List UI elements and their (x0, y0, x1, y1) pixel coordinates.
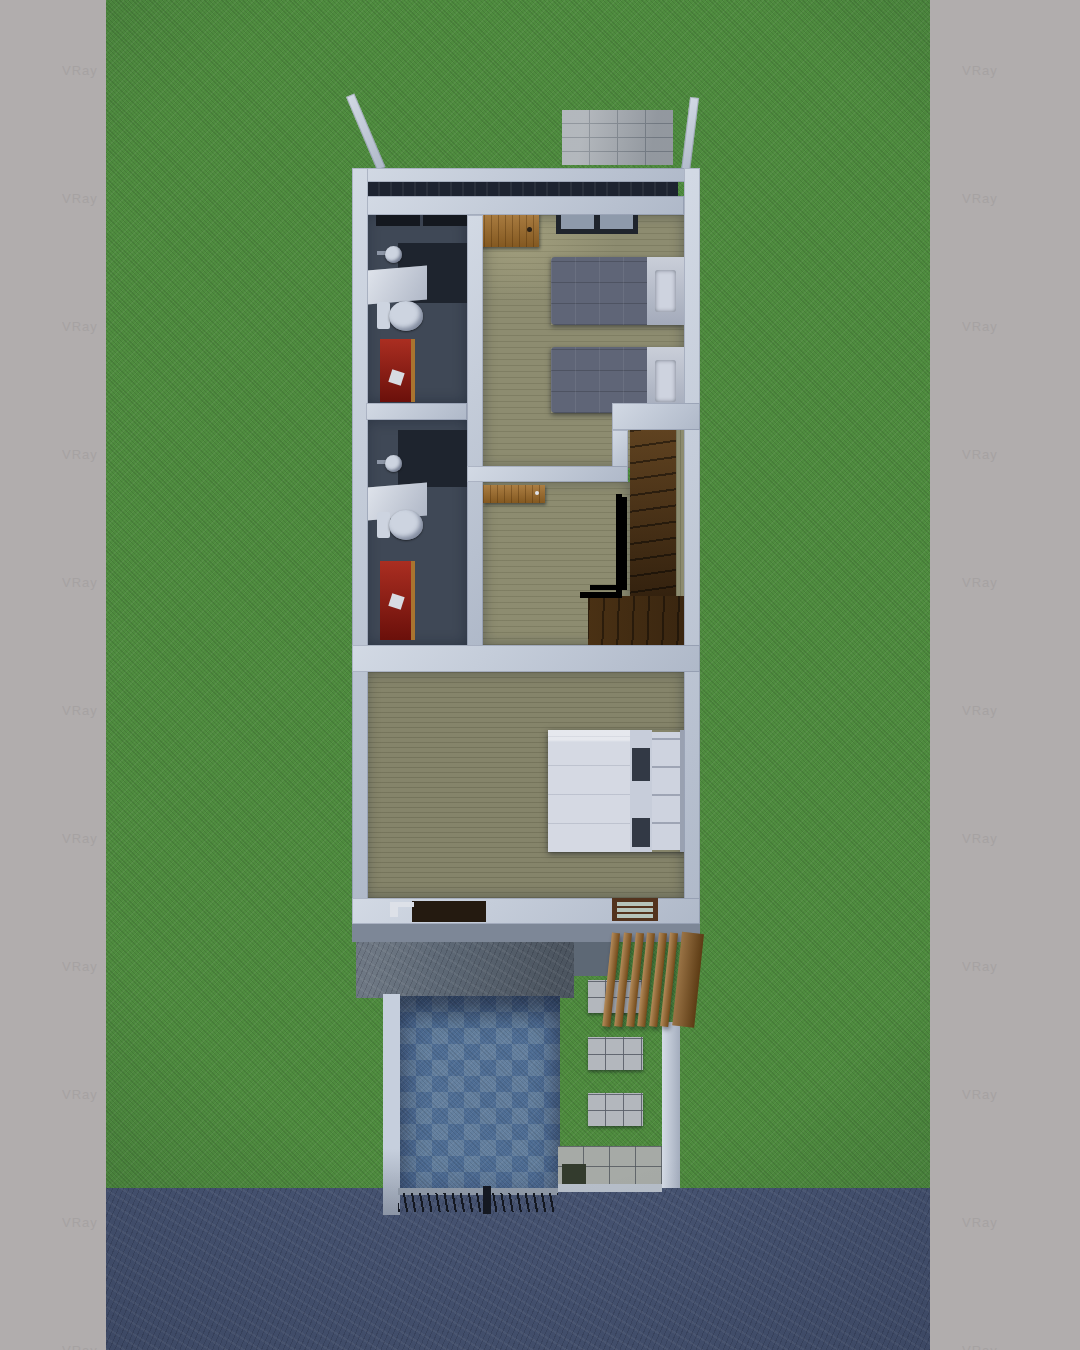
vray-watermark: VRay (962, 447, 998, 462)
washbasin (385, 246, 402, 263)
door-mat (562, 1164, 586, 1184)
toilet-bowl (389, 510, 423, 540)
hallway-open-door (483, 485, 545, 503)
scene (106, 0, 930, 1350)
vray-watermark: VRay (962, 319, 998, 334)
vray-watermark: VRay (962, 191, 998, 206)
outer-wall-right (684, 168, 700, 922)
front-interior-wall (366, 196, 684, 215)
interior-wall-between-bathrooms (366, 403, 467, 420)
blanket-fold (632, 818, 650, 847)
vray-watermark: VRay (62, 191, 98, 206)
bedroom-door (477, 212, 539, 247)
vray-watermark: VRay (962, 1343, 998, 1350)
stair-upper-flight (630, 430, 676, 598)
interior-wall-hall-master (352, 645, 700, 672)
vray-watermark: VRay (962, 959, 998, 974)
door-knob-icon (535, 491, 539, 495)
bathroom-2-shower-zone (398, 430, 467, 487)
carport-tile-floor (400, 996, 560, 1190)
interior-wall-bedroom-hall (467, 466, 628, 482)
vray-watermark: VRay (62, 831, 98, 846)
front-gate (398, 1193, 558, 1212)
dark-door-panel (412, 901, 486, 922)
bed-pillows (652, 732, 680, 850)
door-knob-icon (527, 227, 532, 232)
asphalt-texture (106, 1188, 930, 1350)
vray-frame-left: VRayVRayVRayVRayVRayVRayVRayVRayVRayVRay… (0, 0, 106, 1350)
washbasin (385, 455, 402, 472)
bed-pillow (655, 270, 676, 312)
louver-pane (617, 914, 653, 918)
louver-pane (617, 902, 653, 906)
window-pane (561, 215, 594, 229)
street (106, 1188, 930, 1350)
stair-side-floor-strip (676, 430, 684, 598)
vanity-counter (367, 265, 427, 304)
gate-post (483, 1186, 491, 1214)
bed-blanket (551, 257, 649, 325)
slab-texture (356, 942, 574, 998)
vray-watermark: VRay (962, 63, 998, 78)
stepping-stone (588, 1093, 643, 1126)
vray-watermark: VRay (62, 703, 98, 718)
single-bed (551, 257, 684, 325)
stone-accent-wall (562, 110, 673, 165)
stair-lower-landing (588, 596, 684, 645)
vray-watermark: VRay (962, 575, 998, 590)
toilet-bowl (389, 301, 423, 331)
bed-pillow (655, 360, 676, 402)
carport-side-wall (383, 994, 400, 1215)
vray-watermark: VRay (62, 1343, 98, 1350)
vray-watermark: VRay (962, 831, 998, 846)
vray-watermark: VRay (62, 319, 98, 334)
outer-wall-left (352, 168, 368, 922)
window-pane (600, 215, 633, 229)
concrete-slab (356, 942, 574, 998)
vray-watermark: VRay (62, 447, 98, 462)
louver-window (612, 898, 658, 921)
tile-noise (400, 996, 560, 1190)
interior-wall-bathrooms (467, 215, 483, 648)
louver-pane (617, 908, 653, 912)
double-bed (548, 730, 685, 852)
vray-watermark: VRay (62, 959, 98, 974)
entry-pillar (662, 1022, 680, 1188)
bed-duvet (548, 730, 630, 852)
stairwell-wall (612, 403, 700, 430)
front-parapet-wall (352, 168, 700, 182)
render-canvas: VRayVRayVRayVRayVRayVRayVRayVRayVRayVRay… (0, 0, 1080, 1350)
vray-watermark: VRay (62, 1087, 98, 1102)
vray-watermark: VRay (962, 1087, 998, 1102)
door-frame-mark (390, 902, 398, 917)
vray-watermark: VRay (62, 63, 98, 78)
vray-frame-right: VRayVRayVRayVRayVRayVRayVRayVRayVRayVRay… (930, 0, 1080, 1350)
vray-watermark: VRay (62, 575, 98, 590)
vray-watermark: VRay (962, 1215, 998, 1230)
stepping-stone (588, 1037, 643, 1070)
blanket-fold (632, 748, 650, 781)
vray-watermark: VRay (962, 703, 998, 718)
terrace-void-gap (366, 182, 678, 196)
stair-handrail-inner (590, 497, 627, 590)
vray-watermark: VRay (62, 1215, 98, 1230)
walkway-curb (558, 1184, 662, 1192)
